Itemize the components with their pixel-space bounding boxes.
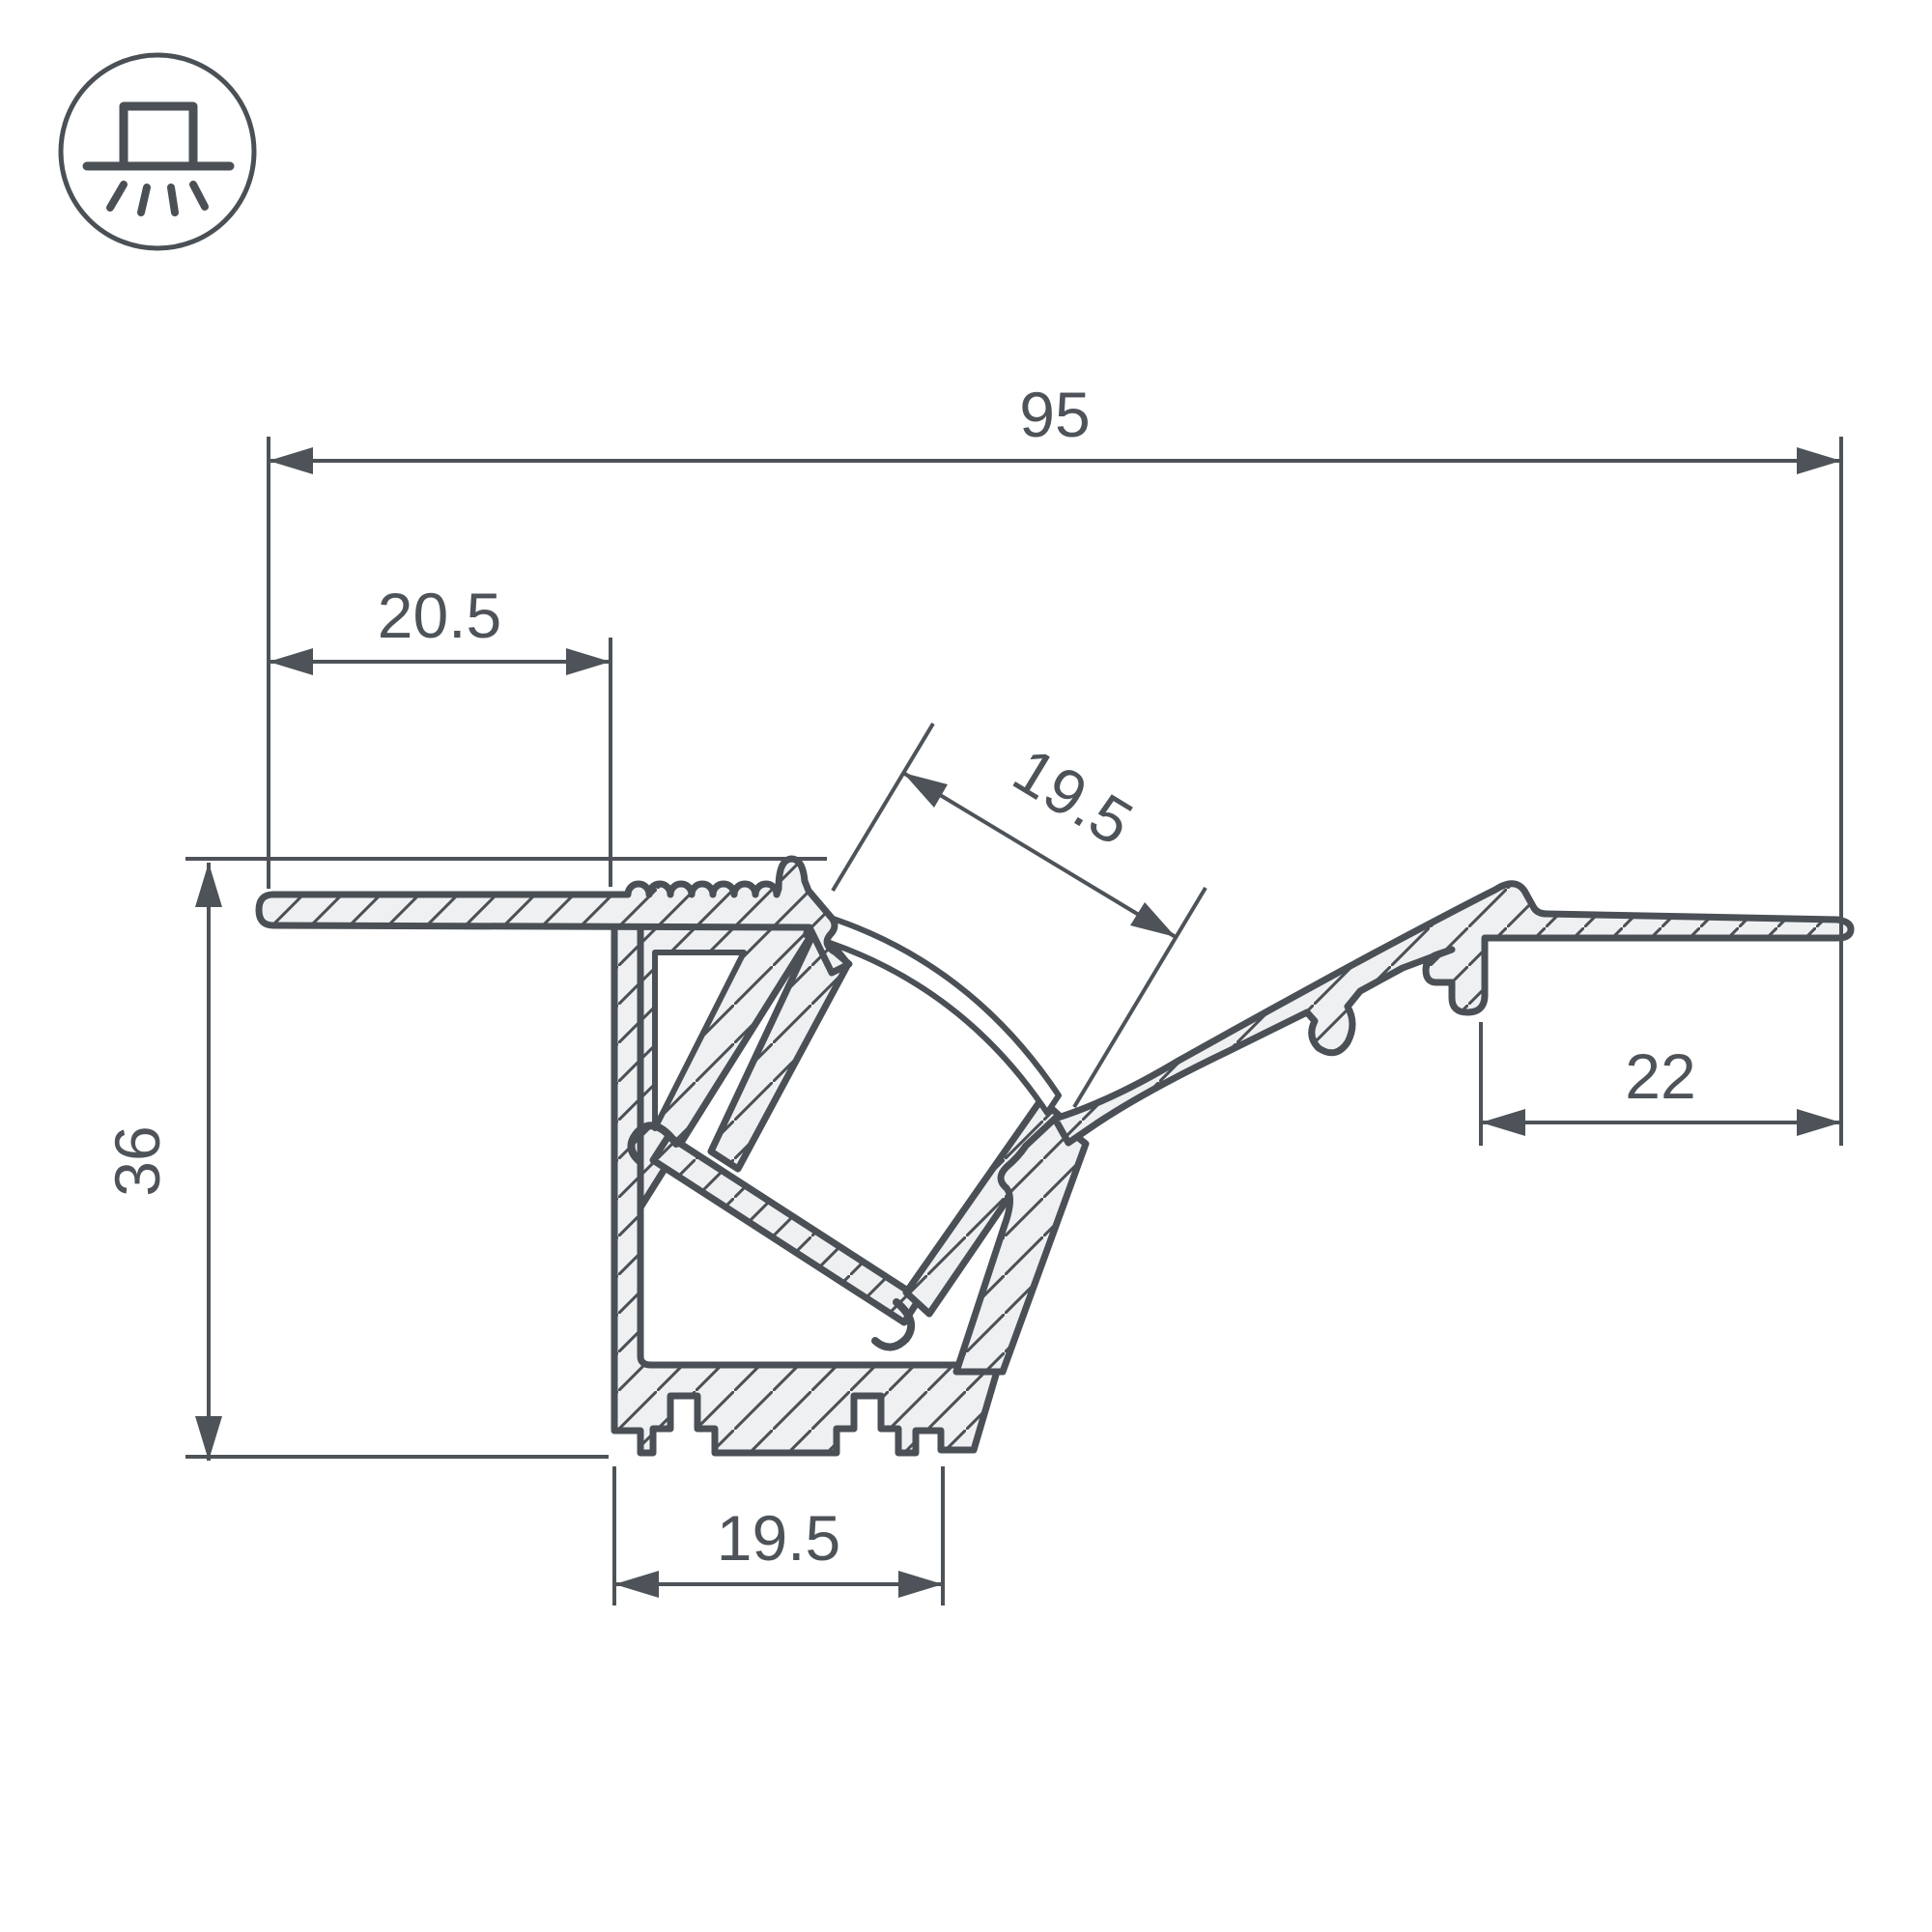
dim-22-label: 22 — [1625, 1040, 1695, 1112]
dim-19-5-bottom-label: 19.5 — [717, 1502, 840, 1574]
technical-drawing-svg: 95 20.5 36 19.5 22 19.5 — [0, 0, 1932, 1932]
dim-95-label: 95 — [1019, 379, 1090, 450]
dim-36-label: 36 — [101, 1125, 173, 1196]
dim-20-5-label: 20.5 — [378, 580, 501, 651]
drawing-background — [0, 0, 1932, 1932]
